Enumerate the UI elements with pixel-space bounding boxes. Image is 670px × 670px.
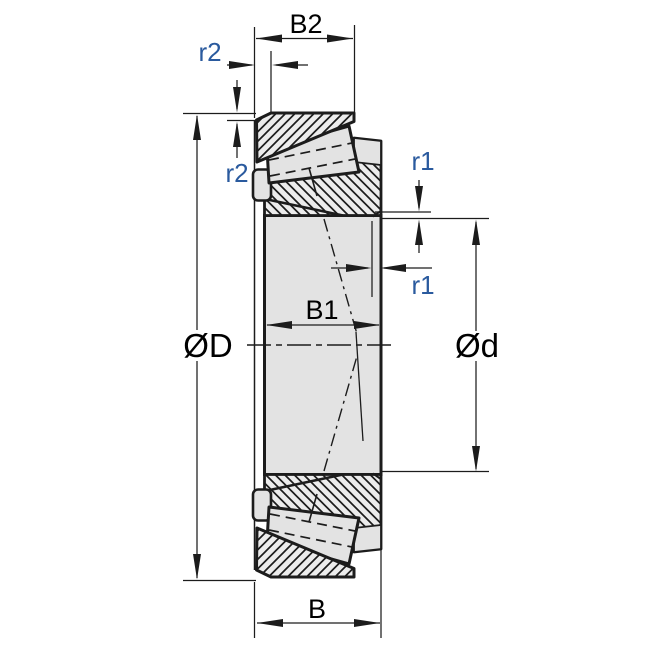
label-radius-r1-top: r1 [411, 146, 434, 176]
bearing-cross-section-diagram: B2 r2 r2 ØD B1 r1 r1 Ød B [0, 0, 670, 670]
arrow-bore-down [472, 446, 480, 472]
arrow-b2-right [327, 35, 353, 43]
arrow-bore-up [472, 220, 480, 246]
arrow-od-down [193, 554, 201, 580]
arrow-r2-left [229, 61, 255, 69]
label-radius-r2-top: r2 [198, 37, 221, 67]
arrow-r1h-left [381, 264, 407, 272]
arrow-r2-right [272, 61, 298, 69]
label-bore-diameter: Ød [455, 327, 499, 364]
label-radius-r2-side: r2 [225, 158, 248, 188]
label-radius-r1-side: r1 [411, 270, 434, 300]
arrow-b2-left [256, 35, 282, 43]
label-cone-width-b1: B1 [305, 295, 338, 325]
arrow-r2v-down [233, 87, 241, 113]
label-cup-width-b2: B2 [289, 9, 322, 39]
arrow-b-left [257, 619, 283, 627]
bearing-drawing-canvas: B2 r2 r2 ØD B1 r1 r1 Ød B [0, 0, 670, 670]
arrow-b-right [354, 619, 380, 627]
label-outer-diameter: ØD [183, 327, 233, 364]
arrow-r1v-down [415, 186, 423, 212]
arrow-r2v-up [233, 122, 241, 148]
arrow-od-up [193, 115, 201, 141]
arrow-r1v-up [415, 220, 423, 246]
label-total-width-b: B [308, 594, 326, 624]
